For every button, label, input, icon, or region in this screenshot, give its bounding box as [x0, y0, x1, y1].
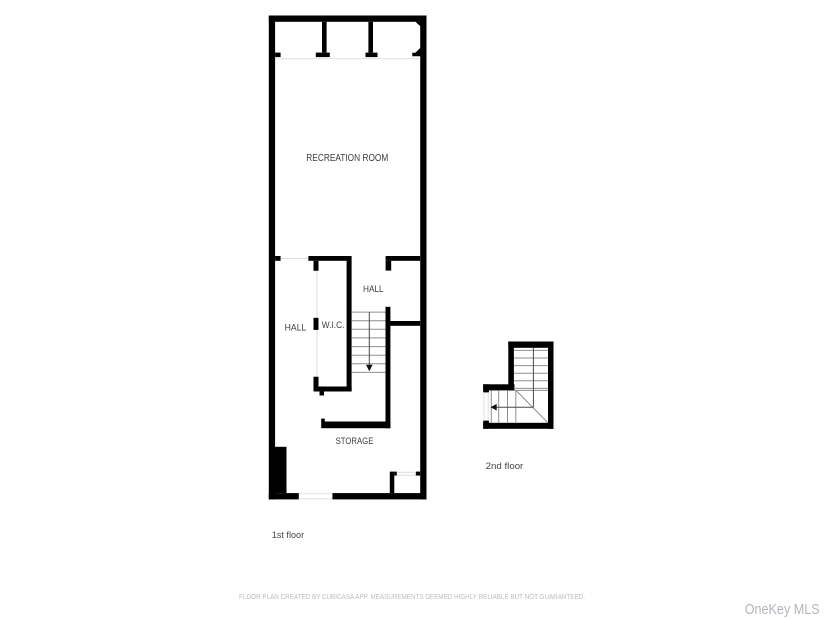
svg-text:STORAGE: STORAGE	[336, 436, 374, 446]
svg-text:RECREATION ROOM: RECREATION ROOM	[306, 152, 388, 164]
svg-text:1st floor: 1st floor	[272, 530, 304, 540]
svg-text:2nd floor: 2nd floor	[486, 461, 524, 471]
svg-text:HALL: HALL	[285, 323, 307, 333]
svg-text:OneKey MLS: OneKey MLS	[745, 602, 820, 618]
svg-text:FLOOR PLAN CREATED BY CUBICASA: FLOOR PLAN CREATED BY CUBICASA APP. MEAS…	[239, 594, 585, 601]
svg-text:HALL: HALL	[363, 284, 384, 294]
svg-text:W.I.C.: W.I.C.	[322, 320, 345, 330]
